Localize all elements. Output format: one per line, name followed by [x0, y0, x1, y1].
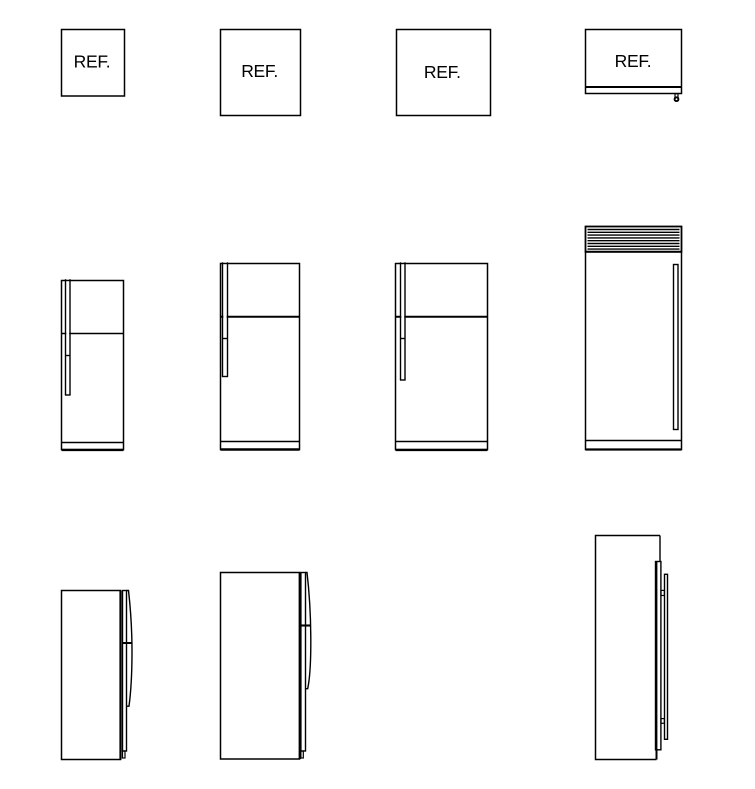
svg-text:REF.: REF. — [424, 62, 461, 82]
svg-text:REF.: REF. — [241, 61, 278, 81]
svg-text:REF.: REF. — [74, 51, 111, 71]
svg-text:REF.: REF. — [615, 51, 652, 71]
